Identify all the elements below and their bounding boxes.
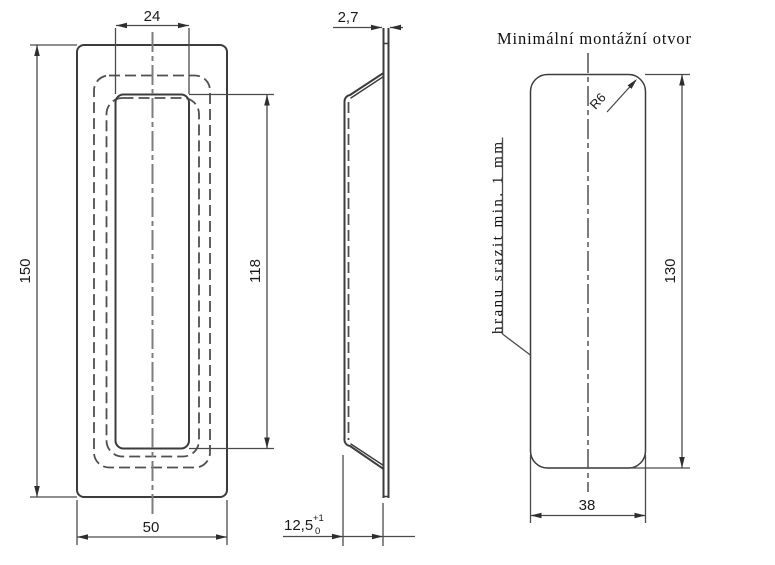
- dim-label-2-7: 2,7: [338, 9, 359, 26]
- arrowhead: [264, 95, 270, 106]
- dim-label-150: 150: [17, 258, 34, 283]
- arrowhead: [635, 513, 646, 519]
- arrowhead: [34, 45, 40, 56]
- arrowhead: [178, 23, 189, 28]
- cup-profile-outline: [344, 73, 383, 469]
- front-view: 24 150 118 50: [17, 8, 274, 545]
- dim-outer-height: 150: [17, 45, 77, 497]
- dim-label-38: 38: [579, 497, 596, 514]
- arrowhead: [371, 25, 382, 31]
- arrowhead: [679, 75, 685, 86]
- dim-tolerance-upper: +1: [313, 513, 324, 524]
- note-leader-line: [503, 334, 532, 356]
- dim-label-12-5: 12,5: [284, 517, 313, 534]
- arrowhead: [116, 23, 127, 28]
- chamfer-note: hranu srazit min. 1 mm: [490, 138, 531, 356]
- arrowhead: [390, 25, 401, 31]
- dim-label-118: 118: [247, 259, 264, 283]
- mounting-hole-view: Minimální montážní otvor 130 38 R6: [490, 29, 692, 523]
- dim-label-24: 24: [144, 8, 161, 25]
- arrowhead: [264, 438, 270, 449]
- dim-inner-height: 118: [189, 95, 274, 449]
- chamfer-note-text: hranu srazit min. 1 mm: [490, 142, 506, 334]
- arrowhead: [216, 534, 227, 540]
- arrowhead: [34, 486, 40, 497]
- side-view: 2,7 12,5 +1 0: [283, 9, 415, 546]
- arrowhead: [679, 457, 685, 468]
- arrowhead: [332, 534, 343, 540]
- arrowhead: [372, 534, 383, 540]
- technical-drawing-flush-pull: 24 150 118 50: [0, 0, 775, 565]
- cup-wall-inner-bottom: [351, 444, 384, 466]
- dim-flange-thickness: 2,7: [333, 9, 403, 30]
- radius-callout: R6: [587, 79, 637, 112]
- dim-depth: 12,5 +1 0: [283, 455, 415, 546]
- dim-tolerance-lower: 0: [315, 526, 320, 537]
- dim-hole-height: 130: [547, 75, 690, 469]
- cup-wall-inner-top: [351, 77, 384, 99]
- dim-label-r6: R6: [587, 90, 609, 112]
- dim-label-130: 130: [662, 258, 679, 283]
- mounting-view-title: Minimální montážní otvor: [497, 29, 692, 48]
- arrowhead: [77, 534, 88, 540]
- dim-label-50: 50: [143, 519, 160, 536]
- arrowhead: [531, 513, 542, 519]
- drawing-canvas: 24 150 118 50: [0, 0, 775, 565]
